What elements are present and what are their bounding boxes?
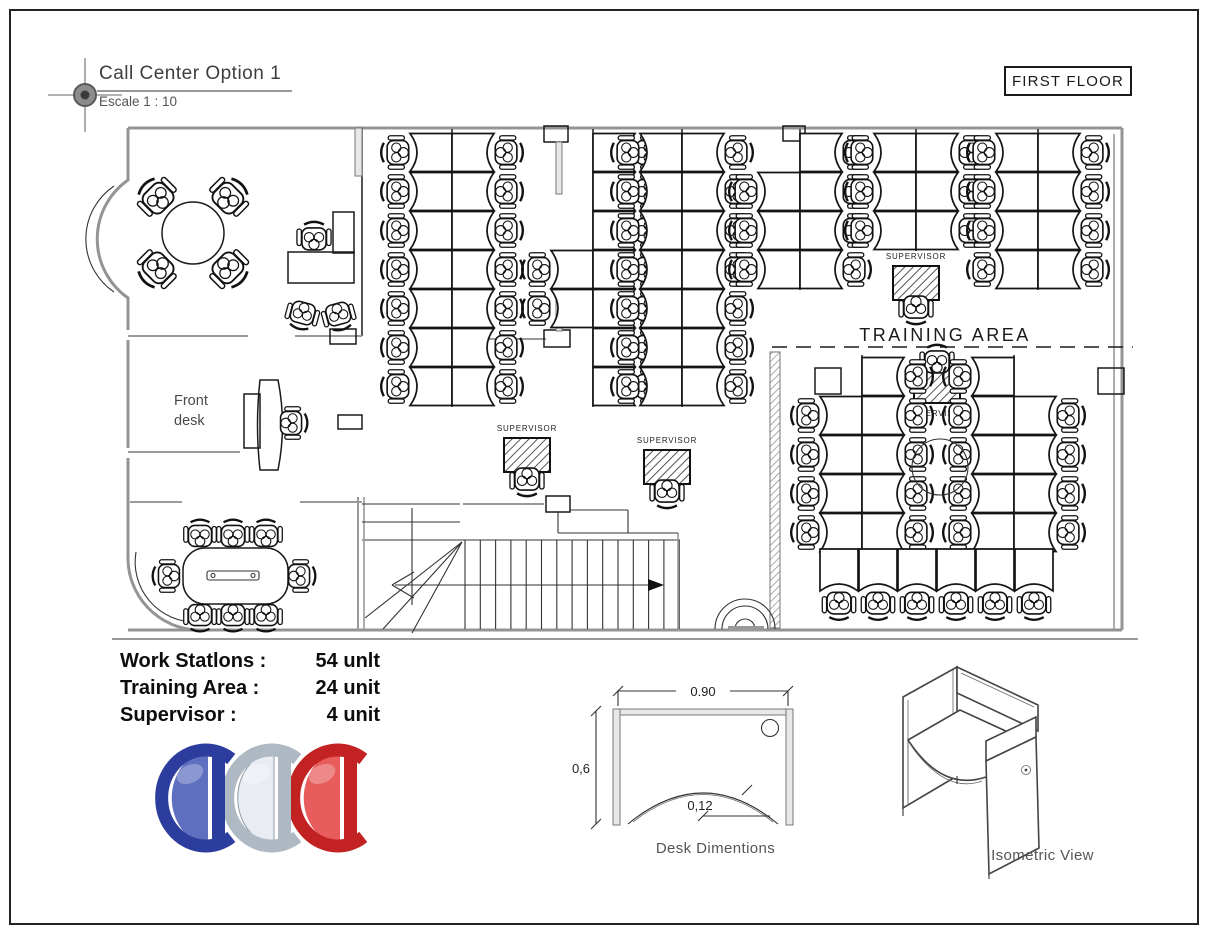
chair-icon: [131, 245, 181, 295]
workstation: [611, 212, 682, 250]
workstation: [943, 397, 1014, 435]
workstation: [452, 251, 523, 289]
isometric-caption: Isometric View: [955, 847, 1130, 864]
workstation: [611, 290, 682, 328]
workstation: [452, 173, 523, 211]
workstation: [682, 329, 753, 367]
logo-letter-c: [228, 748, 298, 848]
workstation: [1014, 397, 1085, 435]
chair-icon: [289, 560, 316, 593]
workstation: [943, 358, 1014, 396]
drawing-scale: Escale 1 : 10: [99, 94, 177, 109]
workstation: [1014, 475, 1085, 513]
ccc-logo: [162, 748, 364, 848]
logo-letter-c: [162, 748, 232, 848]
chair-icon: [250, 520, 283, 547]
office-desk: [283, 212, 358, 334]
legend-row: Supervisor : 4 unit: [120, 702, 380, 729]
chair-icon: [281, 407, 308, 440]
training-area-label: TRAINING AREA: [859, 325, 1031, 345]
chair-icon: [205, 171, 255, 221]
front-desk: [244, 380, 307, 470]
chair-icon: [899, 296, 933, 324]
workstation: [820, 549, 858, 620]
workstation: [381, 212, 452, 250]
workstation: [976, 549, 1014, 620]
workstation: [862, 358, 933, 396]
chair-icon: [131, 171, 181, 221]
supervisor-station: SUPERVISOR: [637, 436, 697, 508]
workstation: [381, 290, 452, 328]
workstation: [729, 173, 800, 211]
chair-icon: [217, 520, 250, 547]
workstation: [452, 290, 523, 328]
workstation: [452, 134, 523, 172]
workstation: [522, 290, 593, 328]
chair-icon: [283, 299, 321, 333]
workstation: [862, 514, 933, 552]
workstation: [862, 397, 933, 435]
workstation: [967, 173, 1038, 211]
workstation: [898, 549, 936, 620]
workstation: [452, 212, 523, 250]
chair-icon: [184, 520, 217, 547]
workstation: [682, 368, 753, 406]
supervisor-label: SUPERVISOR: [886, 252, 946, 261]
workstation: [1014, 514, 1085, 552]
legend: Work Statlons : 54 unlt Training Area : …: [120, 648, 380, 729]
chair-icon: [297, 222, 331, 250]
logo-letter-c: [294, 748, 364, 848]
workstation: [862, 436, 933, 474]
workstation: [1015, 549, 1053, 620]
workstation: [859, 549, 897, 620]
supervisor-station: SUPERVISOR: [886, 252, 946, 324]
stairs: [362, 496, 680, 633]
workstation: [943, 436, 1014, 474]
chair-icon: [650, 480, 684, 508]
desk-dimensions-caption: Desk Dimentions: [618, 840, 813, 857]
workstation: [967, 212, 1038, 250]
drawing-title: Call Center Option 1: [99, 63, 281, 85]
floor-plan: SUPERVISORSUPERVISORSUPERVISORSUPERVISOR…: [0, 0, 1209, 934]
workstation: [682, 134, 753, 172]
chair-icon: [205, 245, 255, 295]
desk-depth-dim: 0,6: [572, 761, 590, 776]
workstation: [611, 368, 682, 406]
floor-label-box: FIRST FLOOR: [1004, 66, 1132, 96]
front-desk-label: Front desk: [174, 392, 208, 431]
workstation: [381, 173, 452, 211]
drawing-sheet: SUPERVISORSUPERVISORSUPERVISORSUPERVISOR…: [0, 0, 1209, 934]
workstation: [611, 329, 682, 367]
workstation: [611, 173, 682, 211]
chair-icon: [184, 605, 217, 632]
workstation: [452, 368, 523, 406]
conference-table: [153, 520, 316, 632]
workstation: [611, 134, 682, 172]
workstation: [682, 290, 753, 328]
workstation: [1038, 134, 1109, 172]
workstation: [611, 251, 682, 289]
legend-row: Training Area : 24 unit: [120, 675, 380, 702]
workstation: [791, 397, 862, 435]
supervisor-label: SUPERVISOR: [497, 424, 557, 433]
workstation: [791, 514, 862, 552]
workstation: [381, 368, 452, 406]
workstation: [943, 475, 1014, 513]
workstation: [937, 549, 975, 620]
lounge-table: [131, 171, 256, 296]
workstation: [845, 134, 916, 172]
training-area: TRAINING AREA: [772, 325, 1133, 620]
supervisor-label: SUPERVISOR: [637, 436, 697, 445]
workstation: [729, 212, 800, 250]
workstation: [1038, 173, 1109, 211]
supervisor-station: SUPERVISOR: [497, 424, 557, 496]
workstation: [862, 475, 933, 513]
workstation: [791, 436, 862, 474]
workstation: [452, 329, 523, 367]
workstation: [791, 475, 862, 513]
workstation: [381, 251, 452, 289]
desk-width-dim: 0.90: [690, 684, 715, 699]
desk-cutout-dim: 0,12: [687, 798, 712, 813]
workstation: [845, 173, 916, 211]
workstation: [522, 251, 593, 289]
workstation: [943, 514, 1014, 552]
workstation: [967, 251, 1038, 289]
workstation: [381, 134, 452, 172]
chair-icon: [250, 605, 283, 632]
workstation: [1038, 251, 1109, 289]
workstation: [1014, 436, 1085, 474]
workstation: [800, 251, 871, 289]
workstation: [381, 329, 452, 367]
workstation: [729, 251, 800, 289]
workstation: [967, 134, 1038, 172]
workstation: [845, 212, 916, 250]
chair-icon: [217, 605, 250, 632]
desk-dimensions-diagram: 0.900,60,12: [572, 684, 793, 829]
workstation: [1038, 212, 1109, 250]
chair-icon: [510, 468, 544, 496]
chair-icon: [153, 560, 180, 593]
legend-row: Work Statlons : 54 unlt: [120, 648, 380, 675]
